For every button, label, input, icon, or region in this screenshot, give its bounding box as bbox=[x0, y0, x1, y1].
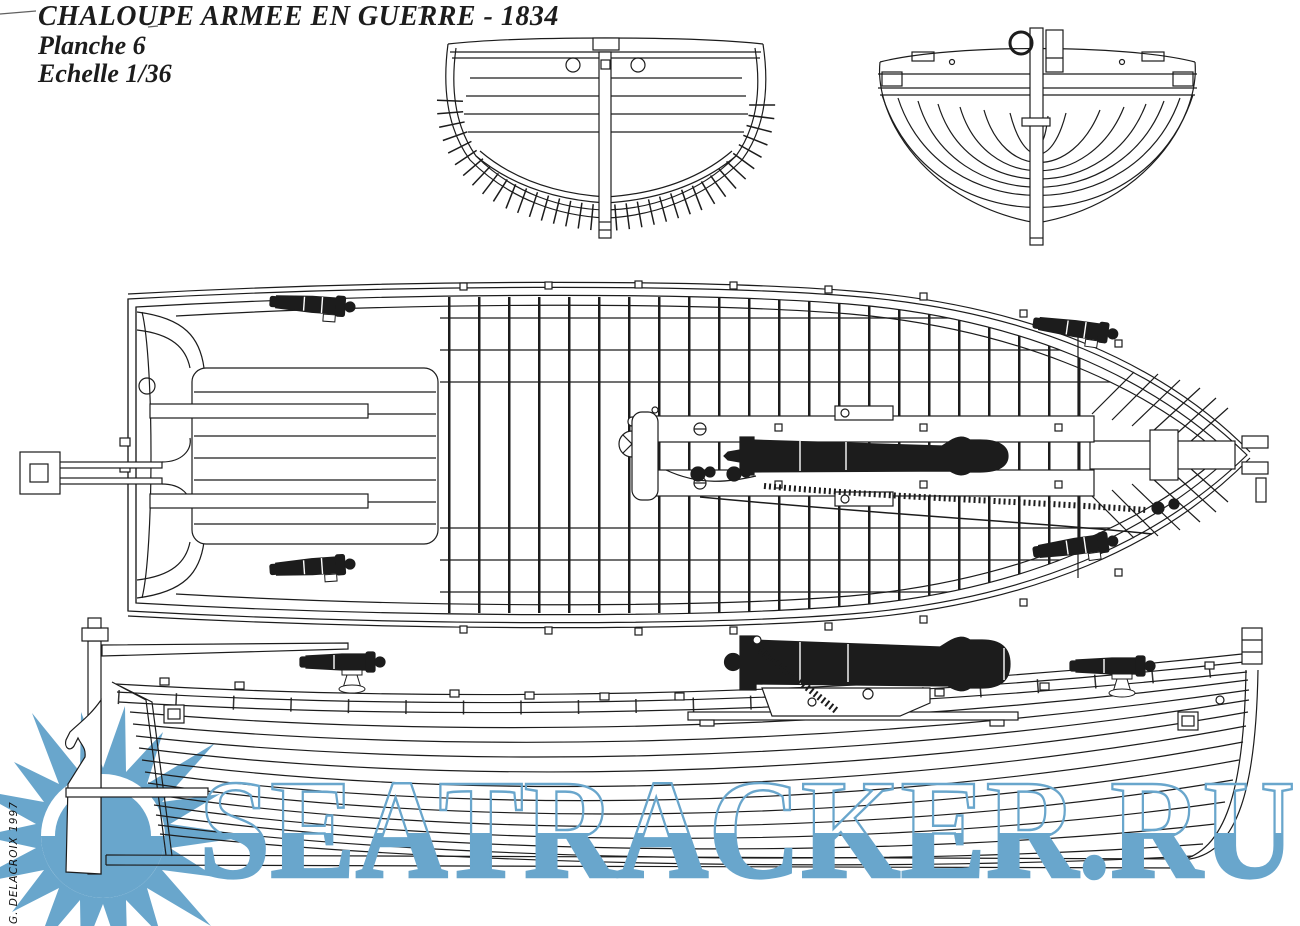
scale-note: Echelle 1/36 bbox=[38, 60, 559, 88]
watermark-text: SEATRACKER.RU bbox=[199, 750, 1295, 908]
stern-body-view bbox=[878, 28, 1197, 245]
author-credit: G. DELACROIX 1997 bbox=[8, 801, 20, 924]
deck-plan-view bbox=[20, 281, 1268, 635]
sheet-title: CHALOUPE ARMEE EN GUERRE - 1834 bbox=[38, 2, 559, 32]
technical-drawing: SEATRACKER.RU bbox=[0, 0, 1300, 926]
carronade-side bbox=[688, 636, 1018, 726]
plan-sheet: SEATRACKER.RU CHALOUPE ARMEE EN GUERRE -… bbox=[0, 0, 1300, 926]
carronade-plan bbox=[724, 437, 1008, 475]
plate-number: Planche 6 bbox=[38, 32, 559, 60]
title-block: CHALOUPE ARMEE EN GUERRE - 1834 Planche … bbox=[38, 2, 559, 88]
